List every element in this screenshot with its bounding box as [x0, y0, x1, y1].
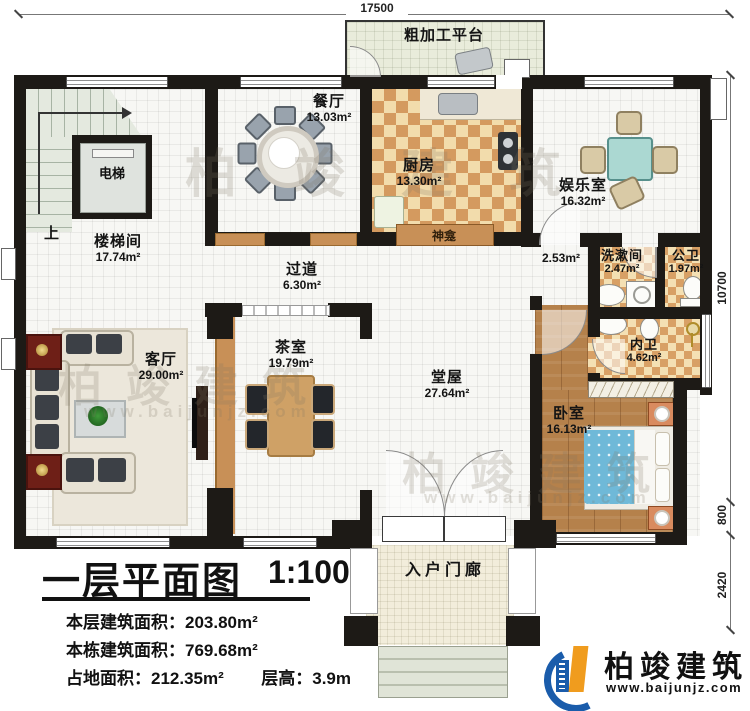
- tea-table: [267, 375, 315, 457]
- tea-chair: [311, 419, 335, 450]
- porch-rail: [508, 548, 536, 614]
- room-label-hall: 堂屋27.64m²: [408, 370, 486, 400]
- wall: [207, 317, 233, 339]
- mahjong-table: [607, 137, 653, 181]
- tea-chair: [311, 384, 335, 415]
- info-line-1: 本层建筑面积：203.80m²: [66, 608, 258, 633]
- tv: [192, 398, 197, 448]
- stair-direction-line-v: [38, 114, 40, 214]
- dimension-top-value: 17500: [346, 1, 408, 15]
- tv-cabinet: [196, 386, 208, 460]
- room-label-corridor: 过道6.30m²: [270, 262, 334, 292]
- window: [66, 77, 168, 87]
- end-table-star: [36, 344, 48, 356]
- sofa-cushion: [35, 424, 59, 449]
- ent-chair: [652, 146, 678, 174]
- wall: [588, 307, 712, 319]
- stair-direction-line: [38, 112, 124, 114]
- room-label-passage-area: 2.53m²: [532, 252, 590, 266]
- end-table-star: [36, 464, 48, 476]
- ent-chair: [580, 146, 606, 174]
- room-label-shrine: 神龛: [396, 227, 492, 245]
- stair-flight-left: [26, 137, 72, 232]
- nightstand-lamp: [654, 510, 670, 526]
- plant: [88, 406, 108, 426]
- wall: [580, 233, 622, 247]
- brand-logo-tower-dots: [559, 663, 565, 689]
- elevator-panel: [92, 149, 134, 158]
- wall: [14, 75, 26, 549]
- tea-chair: [245, 419, 269, 450]
- wall: [673, 388, 687, 545]
- room-label-porch: 入户门廊: [385, 562, 505, 580]
- threshold: [310, 233, 357, 246]
- sofa-cushion: [66, 458, 94, 482]
- window: [556, 534, 656, 543]
- stove-burner: [503, 138, 513, 148]
- room-label-tea: 茶室19.79m²: [256, 340, 326, 370]
- sofa-cushion: [96, 334, 122, 354]
- brand-logo: 柏竣建筑 www.baijunjz.com: [540, 638, 740, 702]
- shower-cord: [691, 333, 693, 347]
- dining-chair: [274, 106, 296, 125]
- room-label-private-wc: 内卫4.62m²: [612, 338, 676, 365]
- sofa-cushion: [66, 334, 92, 354]
- wall: [207, 488, 233, 536]
- room-label-entertainment: 娱乐室16.32m²: [550, 178, 616, 208]
- dining-table-top: [268, 137, 300, 169]
- room-label-up: 上: [42, 226, 62, 243]
- info-line-3: 占地面积：212.35m² 层高：3.9m: [66, 664, 351, 689]
- nightstand-lamp: [654, 406, 670, 422]
- pillow: [655, 432, 670, 466]
- room-label-stairwell: 楼梯间17.74m²: [80, 234, 156, 264]
- wall: [205, 303, 242, 317]
- info-line-2: 本栋建筑面积：769.68m²: [66, 636, 258, 661]
- sofa-cushion: [98, 458, 126, 482]
- bed-sheet-fold: [634, 430, 655, 504]
- porch-floor: [366, 545, 514, 645]
- dimension-right-main-value: 10700: [715, 258, 729, 318]
- dimension-right-bottom-value: 2420: [715, 560, 729, 610]
- kitchen-sink: [438, 93, 478, 115]
- room-label-platform: 粗加工平台: [392, 28, 496, 45]
- room-label-bedroom: 卧室16.13m²: [534, 406, 604, 436]
- porch-pillar: [506, 616, 540, 646]
- window-bay: [1, 248, 16, 280]
- shower-head-icon: [686, 322, 700, 336]
- washing-machine-drum: [633, 286, 651, 304]
- room-label-living: 客厅29.00m²: [126, 352, 196, 382]
- wall: [205, 89, 218, 232]
- sofa-cushion: [35, 395, 59, 420]
- window: [240, 77, 342, 87]
- stove-burner: [503, 154, 513, 164]
- elevator-label: 电梯: [80, 163, 144, 179]
- window: [427, 77, 495, 87]
- title-block: 一层平面图 1:100 本层建筑面积：203.80m² 本栋建筑面积：769.6…: [40, 550, 370, 700]
- plan-scale: 1:100: [268, 554, 350, 591]
- wardrobe: [588, 381, 674, 398]
- room-label-dining: 餐厅13.03m²: [294, 94, 364, 124]
- wall: [360, 490, 372, 536]
- window-bay: [710, 78, 727, 120]
- window: [56, 538, 170, 547]
- ent-chair: [616, 111, 642, 135]
- wall: [530, 296, 542, 310]
- dimension-line-right: [730, 75, 731, 630]
- title-underline: [42, 597, 310, 601]
- entry-door-leaf: [444, 516, 506, 542]
- tea-chair: [245, 384, 269, 415]
- entry-door-leaf: [382, 516, 444, 542]
- window: [584, 77, 674, 87]
- brand-url: www.baijunjz.com: [606, 680, 742, 695]
- folding-door: [242, 305, 330, 316]
- door-opening: [496, 75, 522, 89]
- threshold: [215, 233, 265, 246]
- wall: [588, 273, 600, 337]
- window: [702, 314, 711, 388]
- pillow: [655, 468, 670, 502]
- room-label-kitchen: 厨房13.30m²: [384, 158, 454, 188]
- room-label-washroom: 洗漱间2.47m²: [589, 249, 655, 276]
- dining-chair: [238, 143, 257, 165]
- bed-blanket: [584, 430, 634, 504]
- room-label-public-wc: 公卫1.97m²: [660, 249, 712, 276]
- wall: [658, 233, 712, 247]
- stair-arrow-icon: [122, 107, 132, 119]
- floor-plan-canvas: 电梯: [0, 0, 750, 711]
- wall: [360, 303, 372, 339]
- window-bay: [1, 338, 16, 370]
- dimension-right-mid-value: 800: [715, 495, 729, 535]
- wall: [530, 354, 542, 532]
- entry-steps: [378, 646, 508, 698]
- window: [243, 538, 317, 547]
- wall: [521, 75, 533, 247]
